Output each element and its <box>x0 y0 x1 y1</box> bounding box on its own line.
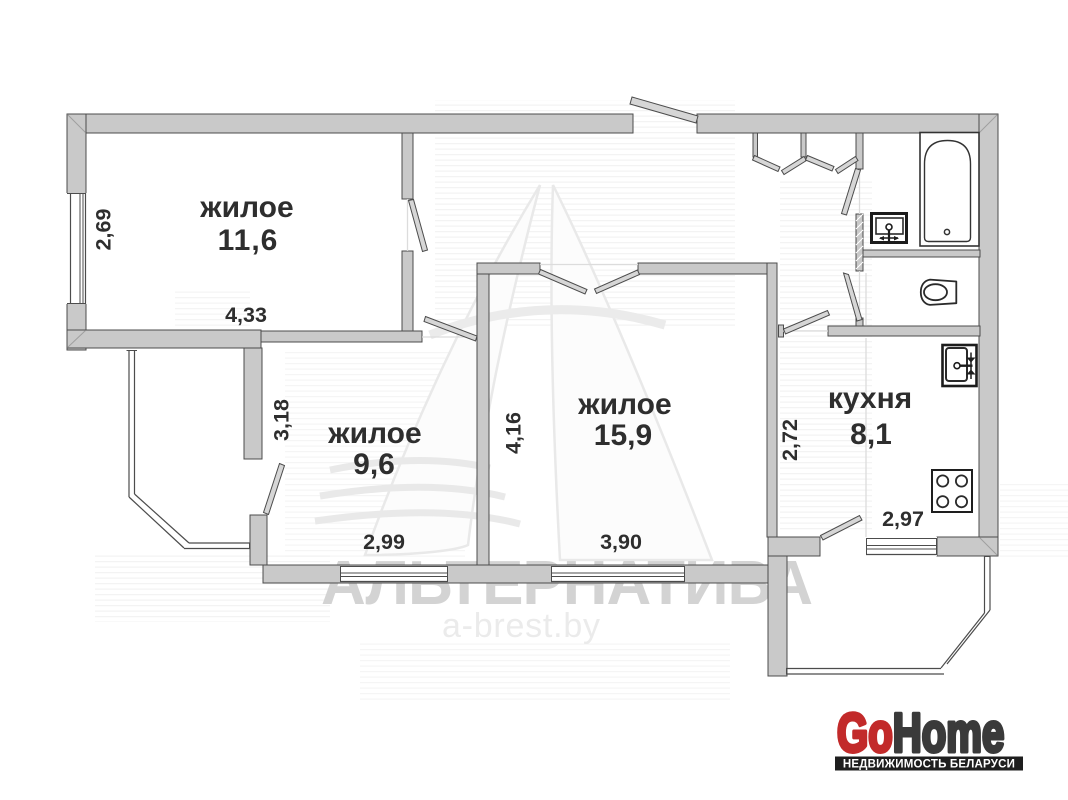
svg-text:кухня: кухня <box>828 382 912 415</box>
svg-text:2,99: 2,99 <box>363 530 405 554</box>
svg-text:9,6: 9,6 <box>353 448 395 481</box>
svg-text:2,72: 2,72 <box>778 419 802 461</box>
svg-text:жилое: жилое <box>327 417 421 450</box>
svg-text:8,1: 8,1 <box>850 418 892 451</box>
svg-text:4,33: 4,33 <box>225 303 267 327</box>
svg-text:a-brest.by: a-brest.by <box>442 607 600 645</box>
svg-text:НЕДВИЖИМОСТЬ БЕЛАРУСИ: НЕДВИЖИМОСТЬ БЕЛАРУСИ <box>843 759 1015 771</box>
svg-text:15,9: 15,9 <box>594 419 652 452</box>
svg-text:4,16: 4,16 <box>502 412 526 454</box>
svg-text:2,69: 2,69 <box>92 209 116 251</box>
svg-text:3,90: 3,90 <box>600 530 642 554</box>
svg-text:2,97: 2,97 <box>882 507 924 531</box>
svg-text:жилое: жилое <box>199 191 293 224</box>
svg-text:жилое: жилое <box>577 388 671 421</box>
svg-text:11,6: 11,6 <box>218 224 279 257</box>
svg-text:3,18: 3,18 <box>270 399 294 441</box>
svg-text:GoHome: GoHome <box>837 702 1004 764</box>
